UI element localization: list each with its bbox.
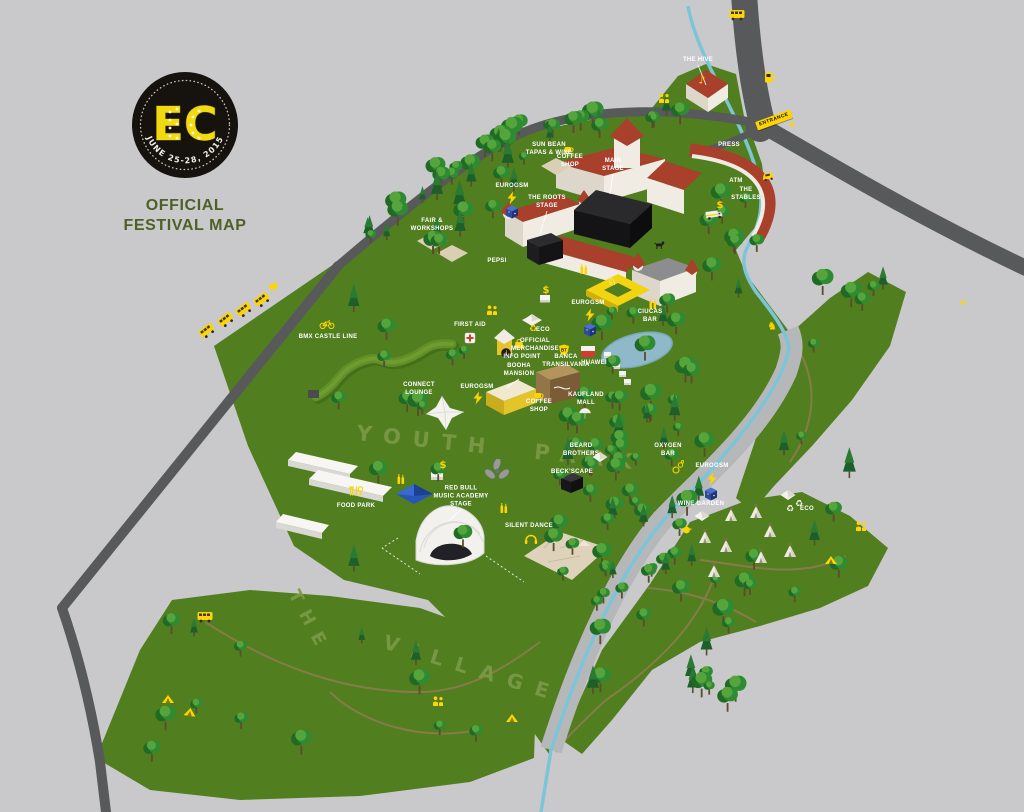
- tent-icon: [825, 556, 837, 565]
- ciucas-bar-label: CIUCASBAR: [638, 309, 663, 325]
- oxygen-bar-label: OXYGENBAR: [654, 443, 681, 459]
- eco-central-label: ECO: [536, 327, 550, 335]
- horse-icon: ♞: [767, 321, 777, 332]
- people-icon: [432, 696, 445, 706]
- bus-icon: [197, 612, 213, 623]
- teapot-icon: [680, 525, 692, 534]
- tipi-icon: [699, 529, 712, 544]
- first-aid-icon: [465, 333, 476, 344]
- official-merchandise-label: OFFICIALMERCHANDISE: [511, 338, 559, 354]
- logo-subtitle: OFFICIAL FESTIVAL MAP: [110, 196, 260, 236]
- bus-icon: [729, 10, 745, 21]
- the-stables-label: THESTABLES: [731, 187, 761, 203]
- becks-cape-label: BECK'SCAPE: [551, 469, 593, 477]
- people-icon: [658, 93, 671, 103]
- roots-stage-label: THE ROOTSSTAGE: [528, 195, 566, 211]
- info-point-label: INFO POINT: [503, 354, 540, 362]
- red-bull-music-academy-stage-label: RED BULLMUSIC ACADEMYSTAGE: [433, 485, 488, 508]
- bmx-castle-line-label: BMX CASTLE LINE: [299, 334, 358, 342]
- tipi-icon: [764, 523, 777, 538]
- silent-dance-label: SILENT DANCE: [505, 523, 553, 531]
- cube-icon: [705, 488, 717, 501]
- fair-workshops-label: FAIR &WORKSHOPS: [411, 218, 454, 234]
- tipi-icon: [750, 504, 763, 519]
- eco-village-label: ECO: [800, 506, 814, 514]
- tipi-icon: [720, 538, 733, 553]
- fuel-icon: [764, 71, 776, 84]
- huawei-label: HUAWEI: [581, 360, 607, 368]
- tent-icon: [162, 695, 174, 704]
- tent-icon: [506, 714, 518, 723]
- propeller-icon: [484, 459, 510, 481]
- bolt-icon: [473, 392, 483, 405]
- headphones-icon: [524, 534, 538, 545]
- tipi-icon: [784, 543, 797, 558]
- unicorn-icon: ♘: [608, 278, 617, 288]
- eurogsm-lake-label: EUROGSM: [571, 300, 604, 308]
- eurogsm-park-label: EUROGSM: [460, 384, 493, 392]
- people-icon: [855, 521, 868, 531]
- recycle-icon: ♻: [786, 506, 794, 515]
- first-aid-label: FIRST AID: [454, 322, 486, 330]
- people-icon: [486, 305, 499, 315]
- the-hive-label: THE HIVE: [683, 57, 713, 65]
- beard-brothers-label: BEARDBROTHERS: [563, 443, 599, 459]
- tent-icon: [183, 707, 196, 718]
- festival-logo: EC JUNE 25-28, 2015: [115, 60, 255, 200]
- coffee-shop-castle-label: COFFEESHOP: [557, 154, 583, 170]
- bubbles-icon: [672, 460, 684, 474]
- bottles-icon: [580, 264, 589, 275]
- bolt-icon: [585, 309, 595, 322]
- pepsi-label: PEPSI: [487, 258, 506, 266]
- dog-icon: [654, 241, 666, 250]
- logo-subtitle-line2: FESTIVAL MAP: [110, 216, 260, 236]
- eurogsm-castle-label: EUROGSM: [495, 183, 528, 191]
- svg-text:BT: BT: [561, 348, 567, 353]
- connect-lounge-label: CONNECTLOUNGE: [403, 382, 435, 398]
- cutlery-icon: [349, 486, 363, 496]
- food-park-label: FOOD PARK: [337, 503, 375, 511]
- wine-garden-label: WINE GARDEN: [678, 501, 725, 509]
- tipi-icon: [708, 563, 721, 578]
- umbrella-icon: [579, 407, 592, 419]
- bolt-icon: [507, 192, 517, 205]
- white-tent-icon: [780, 489, 796, 501]
- tipi-icon: [725, 507, 738, 522]
- white-tent-icon: [694, 510, 710, 522]
- main-stage-label: MAINSTAGE: [602, 158, 624, 174]
- cube-icon: [584, 324, 596, 337]
- festival-map: YOUTH PARK THE VILLAGE: [0, 0, 1024, 812]
- cube-icon: [506, 206, 518, 219]
- logo-subtitle-line1: OFFICIAL: [110, 196, 260, 216]
- dollar-icon: $: [440, 461, 447, 471]
- kaufland-mall-label: KAUFLANDMALL: [568, 392, 604, 408]
- bottles-icon: [397, 474, 406, 485]
- tipi-icon: [755, 549, 768, 564]
- white-tent-icon: [524, 313, 540, 325]
- coffee-shop-park-label: COFFEESHOP: [526, 399, 552, 415]
- dollar-icon: $: [543, 286, 550, 296]
- eurogsm-river-label: EUROGSM: [695, 463, 728, 471]
- bike-icon: [320, 319, 335, 329]
- booha-mansion-label: BOOHAMANSION: [504, 363, 534, 379]
- atm-label: ATM: [729, 178, 742, 186]
- press-label: PRESS: [718, 142, 740, 150]
- music-note-icon: ♪: [698, 75, 705, 86]
- logo-initials: EC: [152, 97, 217, 151]
- bottles-icon: [649, 299, 658, 310]
- bottles-icon: [500, 503, 509, 514]
- bolt-icon: [707, 473, 717, 486]
